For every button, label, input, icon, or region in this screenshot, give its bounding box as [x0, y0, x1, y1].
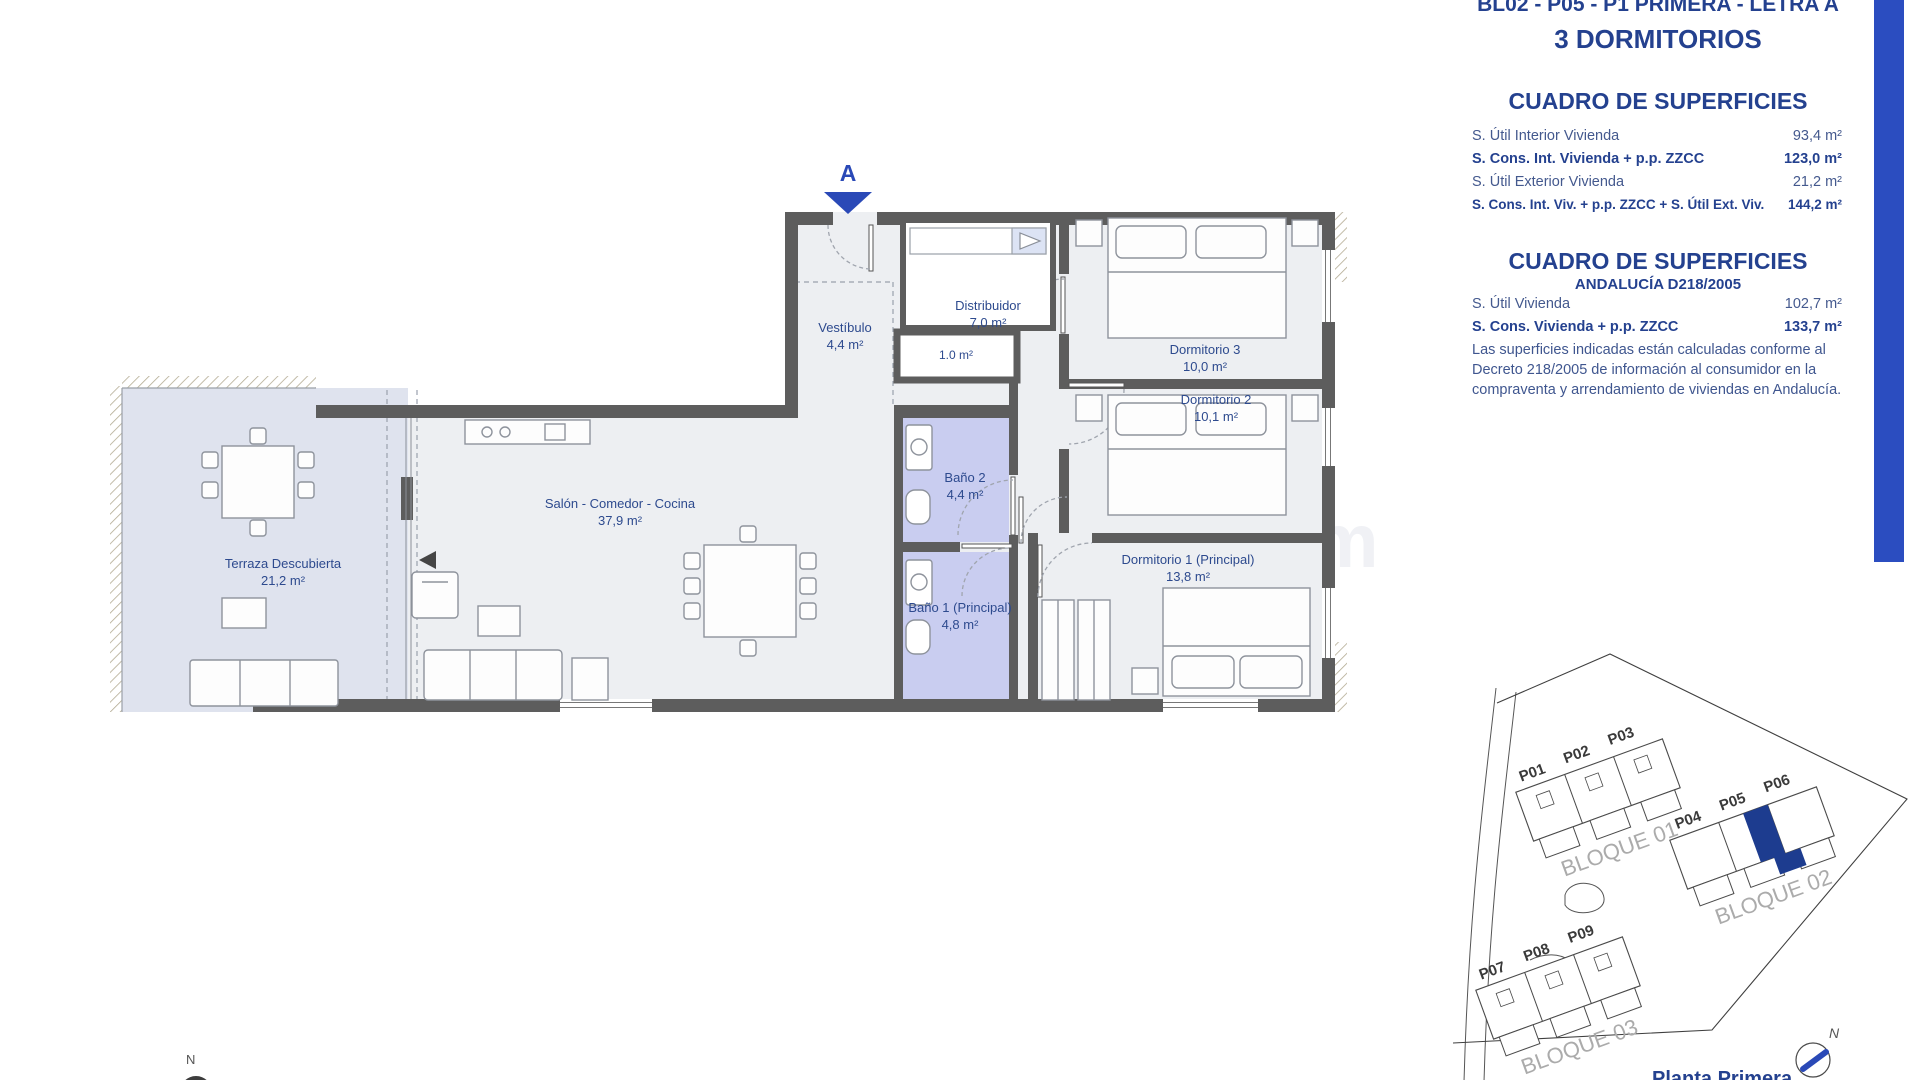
north-marker-partial: [180, 1076, 212, 1080]
surface-row: S. Útil Interior Vivienda 93,4 m²: [1472, 128, 1842, 144]
room-name: Baño 1 (Principal): [908, 600, 1011, 617]
room-area: 1.0 m²: [939, 348, 973, 364]
room-name: Terraza Descubierta: [225, 556, 341, 573]
terraza-table: [222, 446, 294, 518]
surface-value: 102,7 m²: [1785, 296, 1842, 312]
room-name: Dormitorio 2: [1181, 392, 1252, 409]
unit-label: P05: [1717, 789, 1748, 814]
unit-label: P09: [1566, 922, 1597, 947]
room-area: 4,8 m²: [908, 617, 1011, 634]
surface-row: S. Cons. Int. Vivienda + p.p. ZZCC 123,0…: [1472, 151, 1842, 167]
surface-label: S. Útil Interior Vivienda: [1472, 128, 1619, 144]
accent-bar: [1874, 0, 1904, 562]
room-name: Distribuidor: [955, 298, 1021, 315]
surface-row: S. Cons. Vivienda + p.p. ZZCC 133,7 m²: [1472, 319, 1842, 335]
compass-icon: N: [1796, 1025, 1840, 1077]
surface-row: S. Cons. Int. Viv. + p.p. ZZCC + S. Útil…: [1472, 197, 1842, 212]
surface-value: 123,0 m²: [1784, 151, 1842, 167]
room-label-distribuidor: Distribuidor 7,0 m²: [955, 298, 1021, 332]
room-label-bano1: Baño 1 (Principal) 4,8 m²: [908, 600, 1011, 634]
plan-subtitle: 3 DORMITORIOS: [1458, 24, 1858, 55]
unit-label: P02: [1561, 742, 1592, 767]
room-area: 4,4 m²: [944, 487, 985, 504]
room-area: 37,9 m²: [545, 513, 695, 530]
coffee-table: [478, 606, 520, 636]
room-name: Vestíbulo: [818, 320, 872, 337]
surface-value: 144,2 m²: [1788, 197, 1842, 212]
dining-table: [704, 545, 796, 637]
room-area: 4,4 m²: [818, 337, 872, 354]
surface-value: 133,7 m²: [1784, 319, 1842, 335]
legal-note: Las superficies indicadas están calculad…: [1472, 340, 1846, 400]
entrance-label: A: [840, 160, 857, 187]
room-name: Salón - Comedor - Cocina: [545, 496, 695, 513]
plan-title: BL02 - P05 - P1 PRIMERA - LETRA A: [1458, 0, 1858, 17]
room-name: Baño 2: [944, 470, 985, 487]
surface-label: S. Cons. Int. Viv. + p.p. ZZCC + S. Útil…: [1472, 197, 1764, 212]
armchair: [412, 572, 458, 618]
entrance-arrow-icon: [824, 192, 872, 214]
room-label-salon: Salón - Comedor - Cocina 37,9 m²: [545, 496, 695, 530]
room-area: 10,1 m²: [1181, 409, 1252, 426]
unit-label: P03: [1606, 724, 1637, 749]
surface-label: S. Útil Vivienda: [1472, 296, 1570, 312]
surface-label: S. Cons. Vivienda + p.p. ZZCC: [1472, 319, 1678, 335]
room-area: 7,0 m²: [955, 315, 1021, 332]
unit-label: P06: [1761, 771, 1792, 796]
room-label-dormitorio3: Dormitorio 3 10,0 m²: [1170, 342, 1241, 376]
room-label-terraza: Terraza Descubierta 21,2 m²: [225, 556, 341, 590]
floorplan-page: Spain1.com: [0, 0, 1920, 1080]
surface-table-heading: CUADRO DE SUPERFICIES: [1458, 88, 1858, 115]
siteplan-bloque-01: P01 P02 P03 BLOQUE 01: [1507, 715, 1697, 887]
surface-table2-heading: CUADRO DE SUPERFICIES: [1458, 248, 1858, 275]
room-area: 21,2 m²: [225, 573, 341, 590]
north-label-left: N: [186, 1052, 195, 1067]
surface-value: 21,2 m²: [1793, 174, 1842, 190]
room-label-bano2: Baño 2 4,4 m²: [944, 470, 985, 504]
surface-row: S. Útil Exterior Vivienda 21,2 m²: [1472, 174, 1842, 190]
entrance-door-leaf: [869, 225, 873, 271]
room-name: Dormitorio 3: [1170, 342, 1241, 359]
siteplan: P01 P02 P03 BLOQUE 01 P04 P05 P06 BLOQUE…: [1453, 654, 1907, 1080]
room-area: 10,0 m²: [1170, 359, 1241, 376]
siteplan-bloque-03: P07 P08 P09 BLOQUE 03: [1467, 913, 1657, 1080]
floor-caption: Planta Primera: [1652, 1068, 1792, 1080]
compass-north-label: N: [1829, 1025, 1840, 1041]
terraza-sofa: [190, 660, 338, 706]
room-label-dormitorio2: Dormitorio 2 10,1 m²: [1181, 392, 1252, 426]
room-label-dormitorio1: Dormitorio 1 (Principal) 13,8 m²: [1122, 552, 1255, 586]
room-name: Dormitorio 1 (Principal): [1122, 552, 1255, 569]
siteplan-bloque-02: P04 P05 P06 BLOQUE 02: [1661, 763, 1851, 935]
surface-value: 93,4 m²: [1793, 128, 1842, 144]
unit-label: P08: [1521, 940, 1552, 965]
surface-table2-subheading: ANDALUCÍA D218/2005: [1458, 276, 1858, 293]
room-label-closet: 1.0 m²: [939, 348, 973, 364]
surface-label: S. Cons. Int. Vivienda + p.p. ZZCC: [1472, 151, 1704, 167]
surface-label: S. Útil Exterior Vivienda: [1472, 174, 1624, 190]
room-area: 13,8 m²: [1122, 569, 1255, 586]
sofa: [424, 650, 562, 700]
room-label-vestibulo: Vestíbulo 4,4 m²: [818, 320, 872, 354]
surface-row: S. Útil Vivienda 102,7 m²: [1472, 296, 1842, 312]
